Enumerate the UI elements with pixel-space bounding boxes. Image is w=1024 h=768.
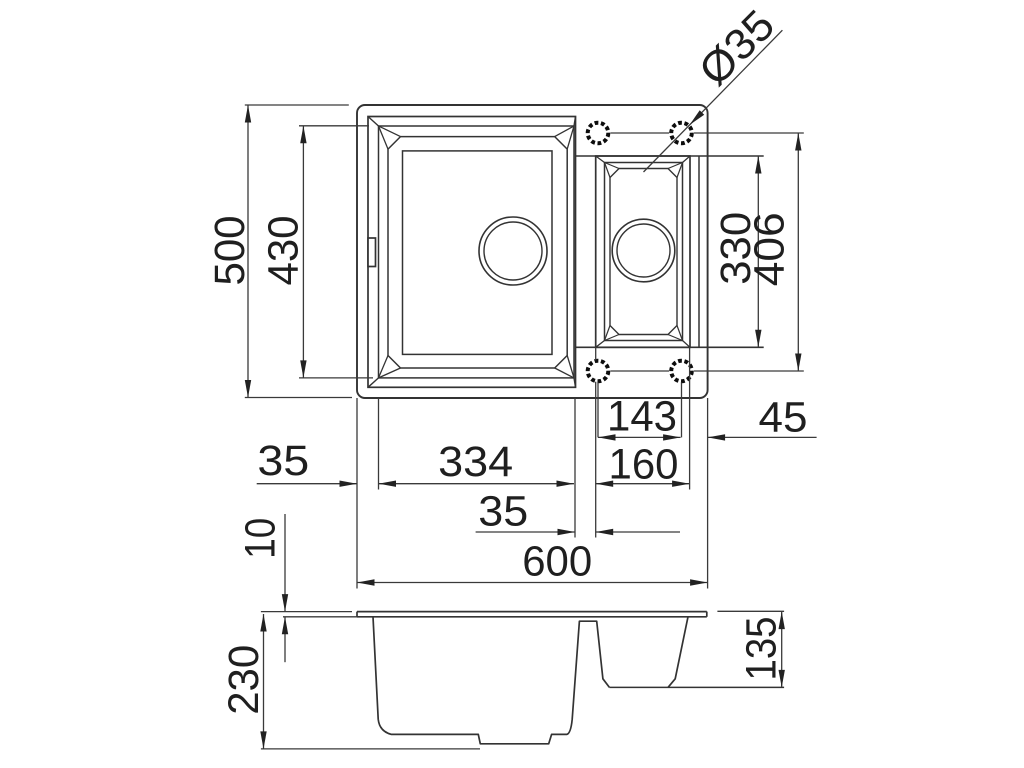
svg-text:35: 35 [257, 437, 309, 485]
svg-text:45: 45 [759, 394, 808, 442]
svg-text:430: 430 [260, 216, 308, 286]
svg-text:10: 10 [237, 518, 285, 559]
svg-text:143: 143 [607, 393, 677, 441]
svg-text:334: 334 [438, 438, 513, 486]
svg-text:500: 500 [206, 216, 254, 286]
svg-text:406: 406 [746, 212, 794, 286]
svg-text:230: 230 [220, 645, 268, 715]
svg-text:600: 600 [522, 538, 592, 586]
svg-text:35: 35 [478, 488, 528, 536]
svg-text:160: 160 [609, 440, 679, 488]
svg-text:135: 135 [738, 617, 786, 681]
